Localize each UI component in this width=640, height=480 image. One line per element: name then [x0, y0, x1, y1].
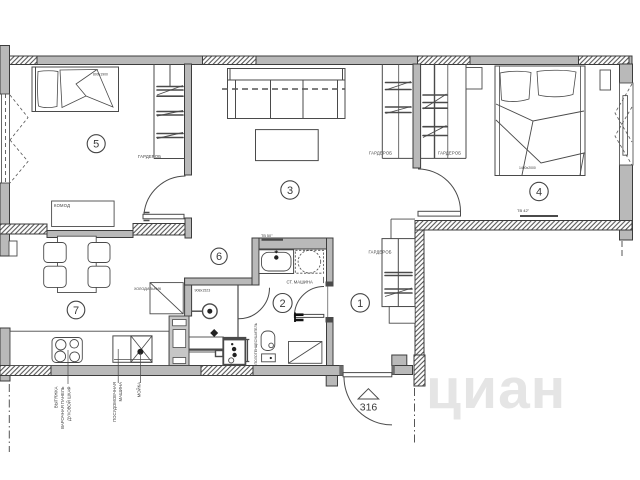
svg-text:СТ. МАШИНА: СТ. МАШИНА [287, 279, 313, 284]
svg-text:МОЙКА: МОЙКА [137, 382, 142, 398]
svg-text:ВАРОЧНАЯ ПАНЕЛЬ: ВАРОЧНАЯ ПАНЕЛЬ [60, 386, 65, 428]
svg-text:ТВ 42": ТВ 42" [517, 208, 530, 213]
svg-text:ПОЛОТЕНЦЕСУШИТЕЛЬ: ПОЛОТЕНЦЕСУШИТЕЛЬ [254, 322, 258, 364]
svg-text:7: 7 [73, 305, 79, 317]
svg-text:ВЫТЯЖКА: ВЫТЯЖКА [54, 386, 59, 408]
svg-text:1400х2000: 1400х2000 [519, 166, 536, 170]
svg-text:ТВ 50": ТВ 50" [261, 234, 273, 238]
svg-text:316: 316 [360, 402, 378, 414]
svg-text:КОМОД: КОМОД [54, 203, 70, 208]
svg-text:ДУХОВОЙ ШКАФ: ДУХОВОЙ ШКАФ [67, 386, 72, 421]
svg-text:908х1523: 908х1523 [195, 289, 211, 293]
svg-text:ХОЛОДИЛЬНИК: ХОЛОДИЛЬНИК [134, 287, 162, 291]
svg-text:3: 3 [287, 185, 293, 197]
svg-text:ГАРДЕРОБ: ГАРДЕРОБ [369, 151, 392, 156]
svg-text:циан: циан [426, 357, 566, 421]
svg-text:ГАРДЕРОБ: ГАРДЕРОБ [369, 250, 392, 255]
svg-text:5: 5 [93, 139, 99, 151]
svg-text:6: 6 [216, 251, 222, 263]
svg-text:1: 1 [357, 298, 363, 310]
svg-text:ГАРДЕРОБ: ГАРДЕРОБ [438, 151, 461, 156]
svg-text:ГАРДЕРОБ: ГАРДЕРОБ [138, 154, 161, 159]
svg-text:4: 4 [536, 187, 542, 199]
svg-text:800х1900: 800х1900 [93, 73, 108, 77]
svg-text:ПОСУДОМОЕЧНАЯ: ПОСУДОМОЕЧНАЯ [112, 382, 117, 422]
svg-text:2: 2 [280, 298, 286, 310]
svg-text:МАШИНА: МАШИНА [118, 382, 123, 402]
